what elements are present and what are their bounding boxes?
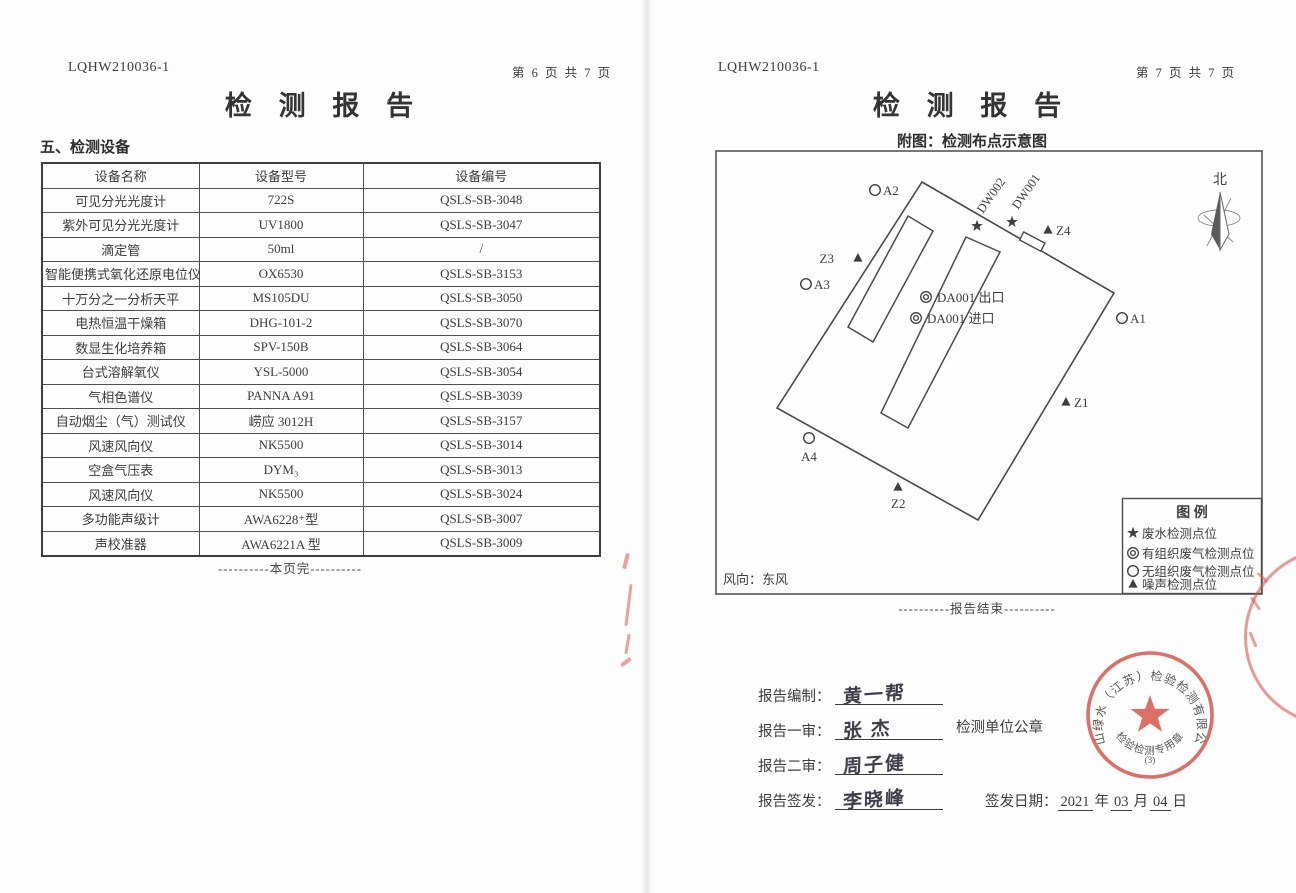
table-cell: QSLS-SB-3014 xyxy=(363,433,600,458)
signature-row: 报告一审：张 杰 xyxy=(758,719,943,741)
north-label: 北 xyxy=(1213,172,1227,188)
signature-line: 李晓峰 xyxy=(835,789,943,810)
handwritten-signature: 周子健 xyxy=(842,748,906,780)
point-label-a4: A4 xyxy=(801,449,817,464)
table-cell: QSLS-SB-3039 xyxy=(363,384,600,409)
table-cell: 滴定管 xyxy=(42,237,199,262)
noise-point-icon xyxy=(893,482,902,491)
table-cell: DHG-101-2 xyxy=(199,311,363,336)
table-cell: 紫外可见分光光度计 xyxy=(42,213,199,238)
seal-star-icon xyxy=(1131,695,1170,732)
table-cell: 电热恒温干燥箱 xyxy=(42,311,199,336)
table-cell: 台式溶解氧仪 xyxy=(42,360,199,385)
table-row: 风速风向仪NK5500QSLS-SB-3024 xyxy=(42,482,600,507)
point-label-z2: Z2 xyxy=(891,496,905,511)
table-row: 十万分之一分析天平MS105DUQSLS-SB-3050 xyxy=(42,286,600,311)
monitoring-points-diagram: DW002 DW001 Z4 Z3 Z1 Z2 A2 A3 A1 A4 DA00… xyxy=(715,150,1263,595)
seal-fragment xyxy=(620,657,632,668)
table-cell: PANNA A91 xyxy=(199,384,363,409)
table-cell: AWA6228⁺型 xyxy=(199,507,363,532)
legend-item-label: 噪声检测点位 xyxy=(1142,577,1217,592)
seal-caption: 检测单位公章 xyxy=(956,716,1043,737)
table-cell: 十万分之一分析天平 xyxy=(42,286,199,311)
report-number: LQHW210036-1 xyxy=(68,60,170,76)
table-cell: QSLS-SB-3054 xyxy=(363,360,600,385)
seal-fragment xyxy=(624,634,630,654)
report-end-marker: ----------报告结束---------- xyxy=(715,598,1239,617)
table-cell: 空盒气压表 xyxy=(42,458,199,483)
table-row: 自动烟尘（气）测试仪崂应 3012HQSLS-SB-3157 xyxy=(42,409,600,434)
issue-month: 03 xyxy=(1111,794,1132,811)
signature-row: 报告二审：周子健 xyxy=(758,754,943,776)
report-number: LQHW210036-1 xyxy=(718,60,820,76)
stack-gas-point-icon xyxy=(921,292,932,303)
col-header-device-name: 设备名称 xyxy=(42,163,199,188)
table-row: 可见分光光度计722SQSLS-SB-3048 xyxy=(42,188,600,213)
point-label-z3: Z3 xyxy=(820,251,834,266)
year-unit: 年 xyxy=(1093,794,1112,810)
table-cell: DYM₃ xyxy=(199,458,363,483)
diagram-subtitle: 附图：检测布点示意图 xyxy=(648,130,1296,151)
table-cell: QSLS-SB-3047 xyxy=(363,213,600,238)
gate xyxy=(1020,232,1045,251)
signature-label: 报告一审： xyxy=(758,724,831,740)
table-cell: 50ml xyxy=(199,237,363,262)
issue-date-line: 签发日期：2021年03月04日 xyxy=(985,790,1189,811)
table-cell: QSLS-SB-3013 xyxy=(363,458,600,483)
table-cell: 自动烟尘（气）测试仪 xyxy=(42,409,199,434)
fugitive-gas-point-icon xyxy=(870,185,881,196)
table-row: 电热恒温干燥箱DHG-101-2QSLS-SB-3070 xyxy=(42,311,600,336)
table-cell: AWA6221A 型 xyxy=(199,531,363,556)
issue-day: 04 xyxy=(1150,794,1171,811)
table-row: 数显生化培养箱SPV-150BQSLS-SB-3064 xyxy=(42,335,600,360)
noise-point-icon xyxy=(1061,397,1070,406)
table-row: 多功能声级计AWA6228⁺型QSLS-SB-3007 xyxy=(42,507,600,532)
point-label-da001-in: DA001 进口 xyxy=(927,311,995,326)
legend: 图 例 废水检测点位 有组织废气检测点位 无组织废气检测点位 噪声检测点位 xyxy=(1123,499,1262,594)
table-row: 智能便携式氧化还原电位仪OX6530QSLS-SB-3153 xyxy=(42,262,600,287)
handwritten-signature: 张 杰 xyxy=(842,713,892,744)
signature-row: 报告签发：李晓峰 xyxy=(758,789,943,811)
handwritten-signature: 李晓峰 xyxy=(842,783,906,815)
page-gutter xyxy=(641,0,655,893)
table-cell: YSL-5000 xyxy=(199,360,363,385)
table-cell: NK5500 xyxy=(199,482,363,507)
table-cell: 崂应 3012H xyxy=(199,409,363,434)
signature-label: 报告编制： xyxy=(758,689,831,705)
page-7: LQHW210036-1 第 7 页 共 7 页 检 测 报 告 附图：检测布点… xyxy=(648,0,1296,893)
table-row: 声校准器AWA6221A 型QSLS-SB-3009 xyxy=(42,531,600,556)
point-label-z1: Z1 xyxy=(1074,395,1088,410)
table-cell: OX6530 xyxy=(199,262,363,287)
legend-item-label: 无组织废气检测点位 xyxy=(1142,564,1255,579)
company-seal: 青山绿水（江苏）检验检测有限公司 检验检测专用章 (3) xyxy=(1080,645,1220,785)
seal-fragment xyxy=(622,553,630,569)
page-title: 检 测 报 告 xyxy=(648,84,1296,123)
svg-text:检验检测专用章: 检验检测专用章 xyxy=(1113,729,1187,757)
signature-line: 黄一帮 xyxy=(835,684,943,705)
handwritten-signature: 黄一帮 xyxy=(842,678,906,710)
col-header-device-model: 设备型号 xyxy=(199,163,363,188)
table-cell: QSLS-SB-3007 xyxy=(363,507,600,532)
stack-gas-point-icon xyxy=(911,313,922,324)
month-unit: 月 xyxy=(1132,794,1151,810)
fugitive-gas-point-icon xyxy=(1117,313,1128,324)
wastewater-point-icon xyxy=(1006,216,1018,227)
table-cell: 风速风向仪 xyxy=(42,433,199,458)
building-west xyxy=(848,216,933,342)
point-label-a3: A3 xyxy=(814,277,830,292)
signature-row: 报告编制：黄一帮 xyxy=(758,684,943,706)
table-cell: 声校准器 xyxy=(42,531,199,556)
scanned-report-spread: LQHW210036-1 第 6 页 共 7 页 检 测 报 告 五、检测设备 … xyxy=(0,0,1296,893)
seal-type-text: 检验检测专用章 xyxy=(1113,729,1187,757)
col-header-device-id: 设备编号 xyxy=(363,163,600,188)
table-cell: 智能便携式氧化还原电位仪 xyxy=(42,262,199,287)
table-row: 台式溶解氧仪YSL-5000QSLS-SB-3054 xyxy=(42,360,600,385)
table-cell: QSLS-SB-3009 xyxy=(363,531,600,556)
table-row: 滴定管50ml/ xyxy=(42,237,600,262)
seal-company-name: 青山绿水（江苏）检验检测有限公司 xyxy=(1080,645,1209,746)
table-cell: QSLS-SB-3024 xyxy=(363,482,600,507)
table-cell: 可见分光光度计 xyxy=(42,188,199,213)
signature-label: 报告签发： xyxy=(758,794,831,810)
page-number: 第 6 页 共 7 页 xyxy=(512,62,612,81)
table-cell: QSLS-SB-3070 xyxy=(363,311,600,336)
page-title: 检 测 报 告 xyxy=(0,84,648,123)
table-cell: 数显生化培养箱 xyxy=(42,335,199,360)
table-cell: QSLS-SB-3157 xyxy=(363,409,600,434)
table-cell: QSLS-SB-3050 xyxy=(363,286,600,311)
table-cell: / xyxy=(363,237,600,262)
seal-fragment xyxy=(624,584,632,626)
legend-title: 图 例 xyxy=(1176,504,1208,521)
building-east xyxy=(881,237,1000,428)
wind-direction: 风向：东风 xyxy=(723,572,788,587)
signature-label: 报告二审： xyxy=(758,759,831,775)
noise-point-icon xyxy=(1043,225,1052,234)
table-cell: QSLS-SB-3064 xyxy=(363,335,600,360)
page-end-marker: ----------本页完---------- xyxy=(41,558,539,577)
issue-year: 2021 xyxy=(1058,794,1093,811)
equipment-table-body: 可见分光光度计722SQSLS-SB-3048紫外可见分光光度计UV1800QS… xyxy=(42,188,600,556)
table-cell: QSLS-SB-3153 xyxy=(363,262,600,287)
page-6: LQHW210036-1 第 6 页 共 7 页 检 测 报 告 五、检测设备 … xyxy=(0,0,648,893)
seal-number: (3) xyxy=(1145,755,1156,765)
table-row: 气相色谱仪PANNA A91QSLS-SB-3039 xyxy=(42,384,600,409)
signature-line: 周子健 xyxy=(835,754,943,775)
table-cell: 多功能声级计 xyxy=(42,507,199,532)
table-header-row: 设备名称 设备型号 设备编号 xyxy=(42,163,600,188)
svg-text:青山绿水（江苏）检验检测有限公司: 青山绿水（江苏）检验检测有限公司 xyxy=(1080,645,1209,746)
legend-item-label: 有组织废气检测点位 xyxy=(1142,546,1255,561)
legend-item-label: 废水检测点位 xyxy=(1142,526,1217,541)
table-cell: NK5500 xyxy=(199,433,363,458)
point-label-a2: A2 xyxy=(883,183,899,198)
compass-icon xyxy=(1198,192,1240,250)
table-cell: 气相色谱仪 xyxy=(42,384,199,409)
point-label-dw002: DW002 xyxy=(974,175,1008,215)
day-unit: 日 xyxy=(1171,794,1190,810)
point-label-z4: Z4 xyxy=(1056,223,1071,238)
point-label-a1: A1 xyxy=(1130,311,1146,326)
table-cell: 722S xyxy=(199,188,363,213)
page-number: 第 7 页 共 7 页 xyxy=(1136,62,1236,81)
point-label-dw001: DW001 xyxy=(1009,171,1043,211)
table-cell: MS105DU xyxy=(199,286,363,311)
issue-date-label: 签发日期： xyxy=(985,794,1058,810)
point-label-da001-out: DA001 出口 xyxy=(937,290,1005,305)
table-cell: QSLS-SB-3048 xyxy=(363,188,600,213)
fugitive-gas-point-icon xyxy=(801,279,812,290)
fugitive-gas-point-icon xyxy=(804,433,815,444)
table-row: 空盒气压表DYM₃QSLS-SB-3013 xyxy=(42,458,600,483)
table-row: 紫外可见分光光度计UV1800QSLS-SB-3047 xyxy=(42,213,600,238)
section-title: 五、检测设备 xyxy=(40,136,130,157)
noise-point-icon xyxy=(853,253,862,262)
wastewater-point-icon xyxy=(971,220,983,231)
table-cell: UV1800 xyxy=(199,213,363,238)
table-cell: 风速风向仪 xyxy=(42,482,199,507)
table-row: 风速风向仪NK5500QSLS-SB-3014 xyxy=(42,433,600,458)
equipment-table: 设备名称 设备型号 设备编号 可见分光光度计722SQSLS-SB-3048紫外… xyxy=(41,162,601,557)
signature-line: 张 杰 xyxy=(835,719,943,740)
table-cell: SPV-150B xyxy=(199,335,363,360)
